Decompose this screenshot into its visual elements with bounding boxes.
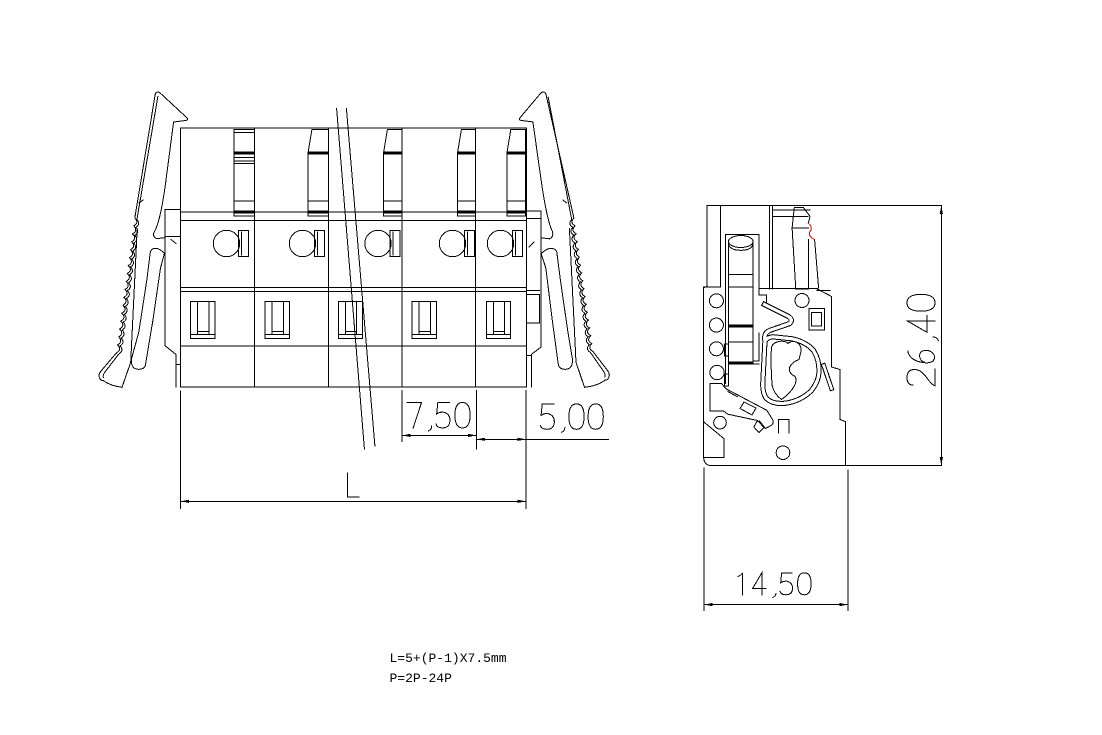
svg-text:L=5+(P-1)X7.5mm: L=5+(P-1)X7.5mm bbox=[390, 651, 507, 666]
svg-text:P=2P-24P: P=2P-24P bbox=[390, 671, 453, 686]
